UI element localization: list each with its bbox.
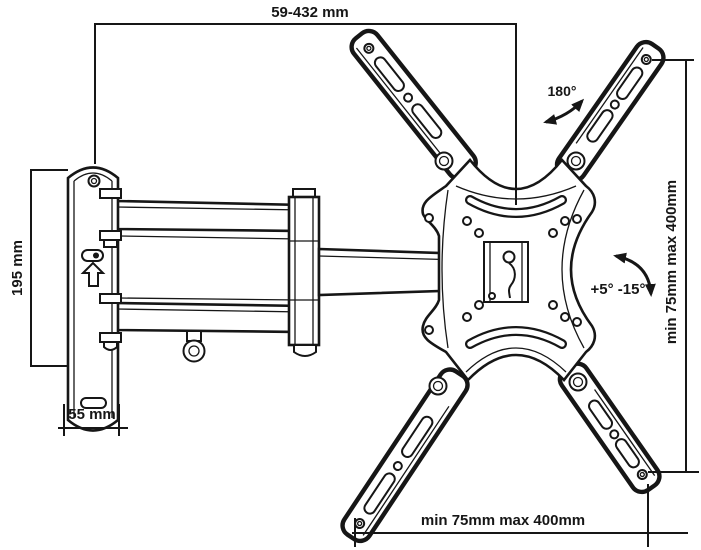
mount-diagram: 59-432 mm 195 mm 55 mm min 75mm max 400m…: [0, 0, 701, 550]
wall-plate: [68, 168, 121, 431]
dimension-bottom: min 75mm max 400mm: [352, 484, 688, 547]
vesa-vertical-label: min 75mm max 400mm: [663, 180, 680, 344]
dimension-right: min 75mm max 400mm: [648, 60, 699, 472]
vesa-plate: [423, 153, 595, 395]
depth-label: 55 mm: [68, 406, 116, 423]
vesa-arm-top-left: [347, 26, 480, 182]
plate-height-label: 195 mm: [9, 240, 26, 296]
tilt-angle-label: +5° -15°: [591, 281, 646, 298]
extension-range-label: 59-432 mm: [271, 4, 349, 21]
tilt-annotation: +5° -15°: [591, 256, 651, 298]
swivel-angle-label: 180°: [548, 83, 577, 99]
mount-diagram-page: 59-432 mm 195 mm 55 mm min 75mm max 400m…: [0, 0, 701, 550]
lock-mechanism: [484, 242, 528, 302]
arm-assembly: [116, 189, 470, 362]
vesa-horizontal-label: min 75mm max 400mm: [421, 512, 585, 529]
elbow-joint: [289, 189, 319, 356]
rotation-arrow-icon: [546, 101, 582, 122]
locking-knob: [184, 331, 205, 362]
swivel-annotation: 180°: [546, 83, 582, 122]
dimension-left: 195 mm: [9, 170, 68, 366]
